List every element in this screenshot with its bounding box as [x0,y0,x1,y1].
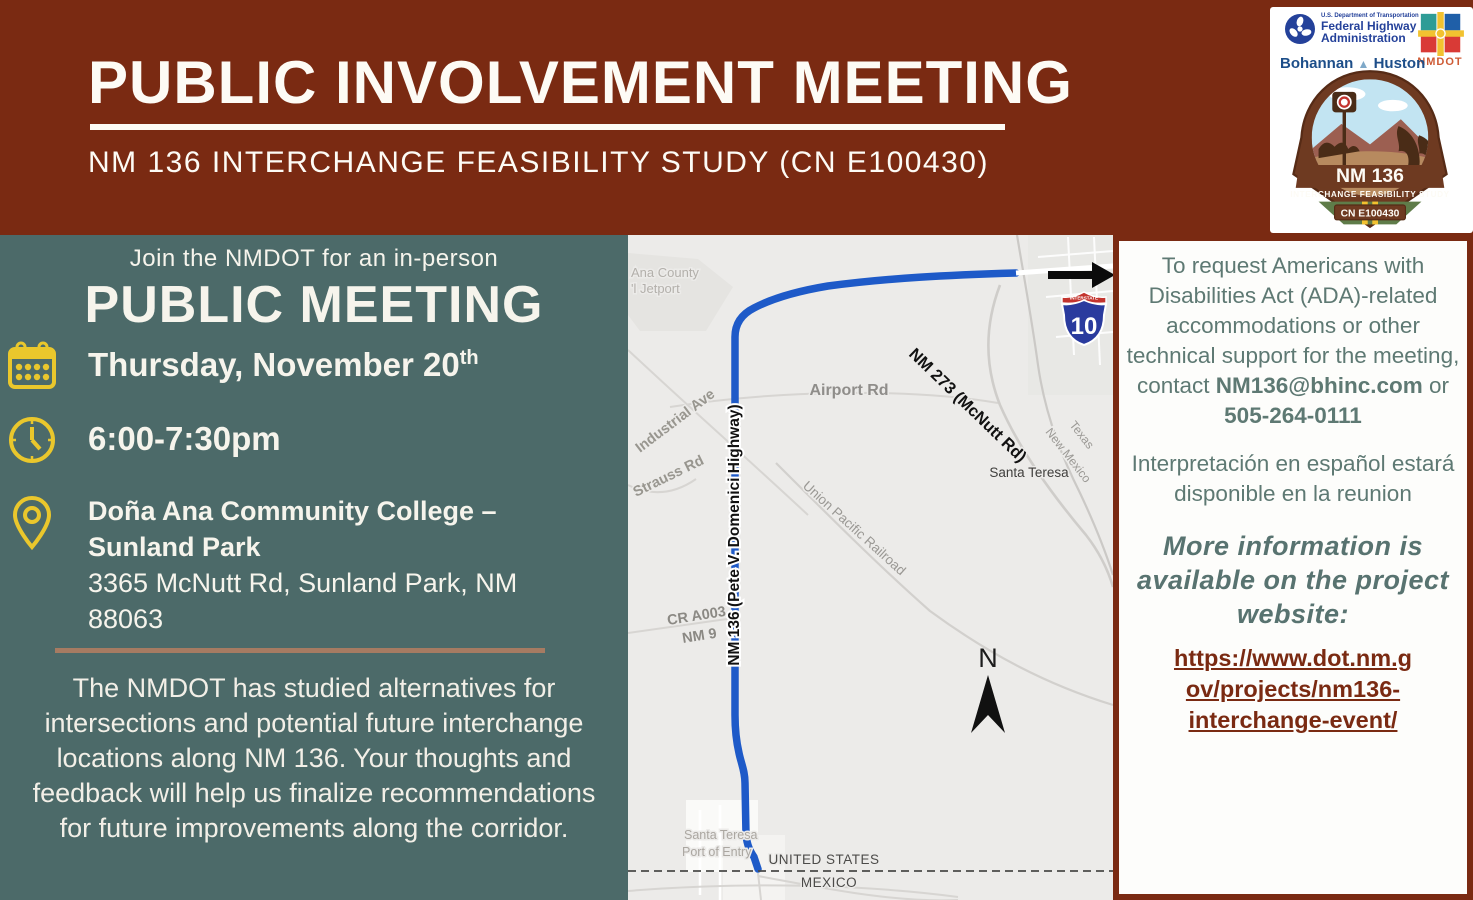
fhwa-text: U.S. Department of Transportation Federa… [1321,13,1419,44]
venue-name-line2: Sunland Park [88,529,517,565]
clock-icon [7,415,57,465]
venue-zip: 88063 [88,601,517,637]
study-description: The NMDOT has studied alternatives for i… [28,671,600,846]
nmdot-icon [1418,12,1464,56]
santa-teresa-label: Santa Teresa [989,465,1069,480]
header-band: PUBLIC INVOLVEMENT MEETING NM 136 INTERC… [0,0,1473,235]
jetport-label: 'l Jetport [631,281,680,296]
port-of-entry-label1: Santa Teresa [684,828,757,842]
fhwa-line2: Administration [1321,32,1419,45]
study-area-map: INTERSTATE 10 N Ana County 'l Jetport In… [628,235,1113,900]
intro-text: Join the NMDOT for an in-person [0,245,628,273]
page-subtitle: NM 136 INTERCHANGE FEASIBILITY STUDY (CN… [88,146,989,180]
mexico-label: MEXICO [801,875,857,890]
port-of-entry-label2: Port of Entry [682,845,752,859]
nm136-label: NM 136 (Pete V. Domenici Highway) [726,404,743,665]
link-line1[interactable]: https://www.dot.nm.g [1125,643,1461,674]
united-states-label: UNITED STATES [768,852,879,867]
venue-address: Doña Ana Community College – Sunland Par… [88,493,517,637]
meeting-date: Thursday, November 20th [88,346,479,384]
public-meeting-title: PUBLIC MEETING [0,275,628,335]
divider [55,648,545,653]
or-text: or [1423,373,1449,398]
date-ordinal: th [460,347,479,369]
page-title: PUBLIC INVOLVEMENT MEETING [88,48,1073,117]
more-info-text: More information is available on the pro… [1125,529,1461,631]
project-website-link[interactable]: https://www.dot.nm.g ov/projects/nm136- … [1125,643,1461,736]
badge-route-label: NM 136 [1336,165,1404,187]
venue-street: 3365 McNutt Rd, Sunland Park, NM [88,565,517,601]
logo-box: U.S. Department of Transportation Federa… [1270,7,1473,233]
contact-phone: 505-264-0111 [1224,403,1362,428]
nm136-badge: NM 136 INTERCHANGE FEASIBILITY STUDY CN … [1284,69,1456,229]
badge-cn-label: CN E100430 [1341,208,1400,219]
location-pin-icon [12,495,52,551]
contact-email: NM136@bhinc.com [1216,373,1423,398]
ada-info-panel: To request Americans with Disabilities A… [1113,235,1473,900]
fhwa-logo: U.S. Department of Transportation Federa… [1284,13,1419,45]
north-label: N [978,643,998,673]
venue-row: Doña Ana Community College – Sunland Par… [0,493,517,637]
link-line3[interactable]: interchange-event/ [1125,705,1461,736]
link-line2[interactable]: ov/projects/nm136- [1125,674,1461,705]
i10-label: 10 [1071,313,1098,340]
spanish-interpretation-text: Interpretación en español estará disponi… [1125,449,1461,509]
venue-name-line1: Doña Ana Community College – [88,493,517,529]
fhwa-icon [1284,13,1316,45]
calendar-icon [7,341,57,391]
ada-text: To request Americans with Disabilities A… [1125,251,1461,431]
time-row: 6:00-7:30pm [0,413,281,465]
meeting-info-panel: Join the NMDOT for an in-person PUBLIC M… [0,235,628,900]
date-row: Thursday, November 20th [0,339,479,391]
date-text: Thursday, November 20 [88,346,460,383]
interstate-label: INTERSTATE [1070,295,1098,300]
title-underline [90,124,1005,130]
ana-county-label: Ana County [631,265,699,280]
flyer: PUBLIC INVOLVEMENT MEETING NM 136 INTERC… [0,0,1473,900]
meeting-time: 6:00-7:30pm [88,420,281,458]
airport-rd-label: Airport Rd [809,382,888,399]
map-panel: INTERSTATE 10 N Ana County 'l Jetport In… [628,235,1113,900]
badge-study-label: INTERCHANGE FEASIBILITY STUDY [1290,190,1449,199]
